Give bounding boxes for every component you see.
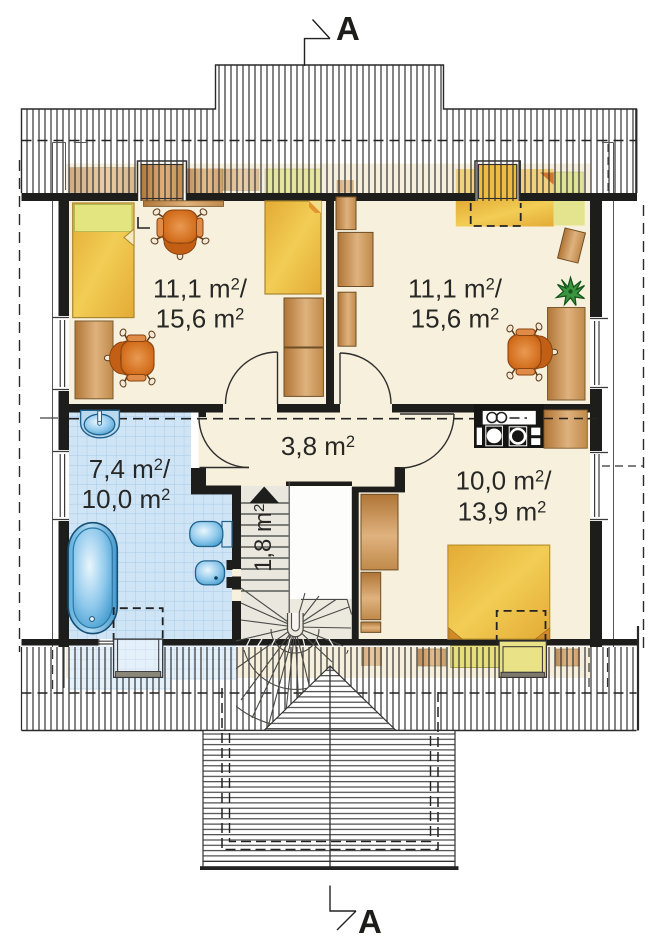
svg-text:15,6 m2: 15,6 m2 <box>411 304 500 334</box>
svg-text:13,9 m2: 13,9 m2 <box>458 497 547 527</box>
svg-text:3,8 m2: 3,8 m2 <box>281 431 355 461</box>
svg-text:15,6 m2: 15,6 m2 <box>156 304 245 334</box>
svg-text:A: A <box>358 903 382 940</box>
svg-text:1,8 m2: 1,8 m2 <box>250 504 277 572</box>
svg-text:A: A <box>336 10 360 47</box>
svg-text:10,0 m2: 10,0 m2 <box>82 484 171 514</box>
